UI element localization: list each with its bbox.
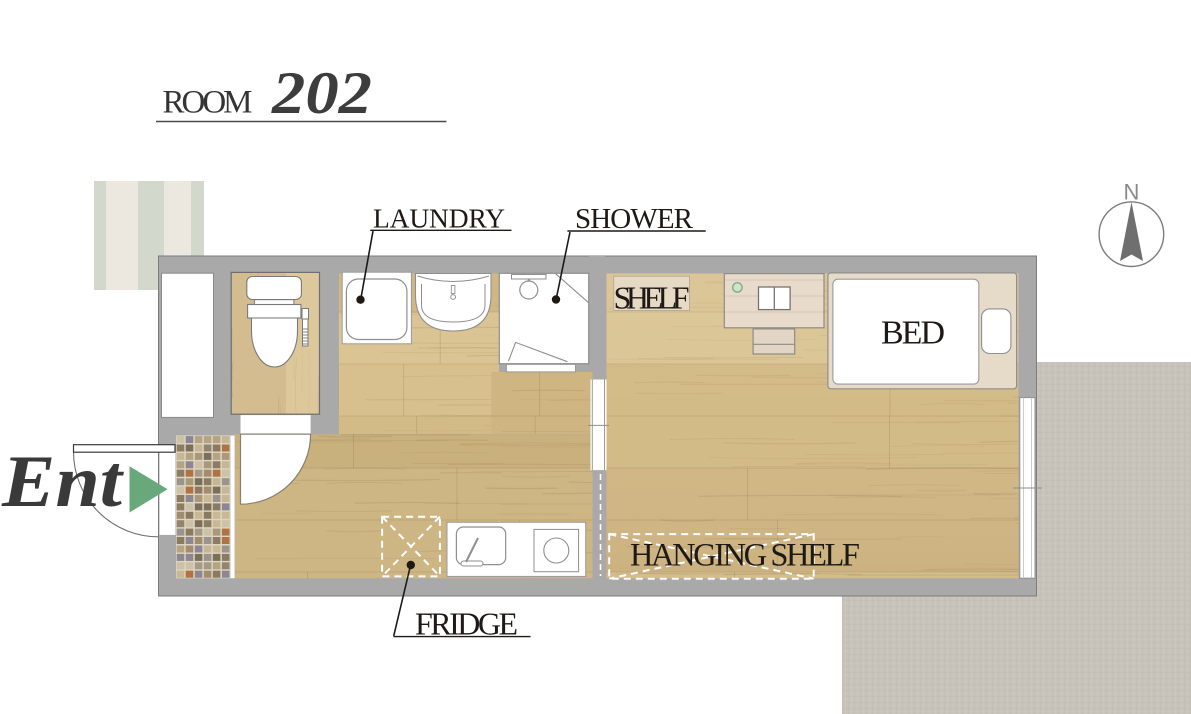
svg-text:SHELF: SHELF — [614, 280, 690, 316]
svg-text:N: N — [1123, 180, 1139, 205]
svg-text:ROOM: ROOM — [163, 84, 253, 120]
svg-text:SHOWER: SHOWER — [575, 203, 694, 235]
svg-text:LAUNDRY: LAUNDRY — [373, 202, 505, 233]
svg-text:Ent: Ent — [1, 441, 125, 523]
svg-text:202: 202 — [271, 60, 372, 126]
svg-text:HANGING SHELF: HANGING SHELF — [630, 538, 860, 574]
svg-text:BED: BED — [881, 315, 945, 352]
